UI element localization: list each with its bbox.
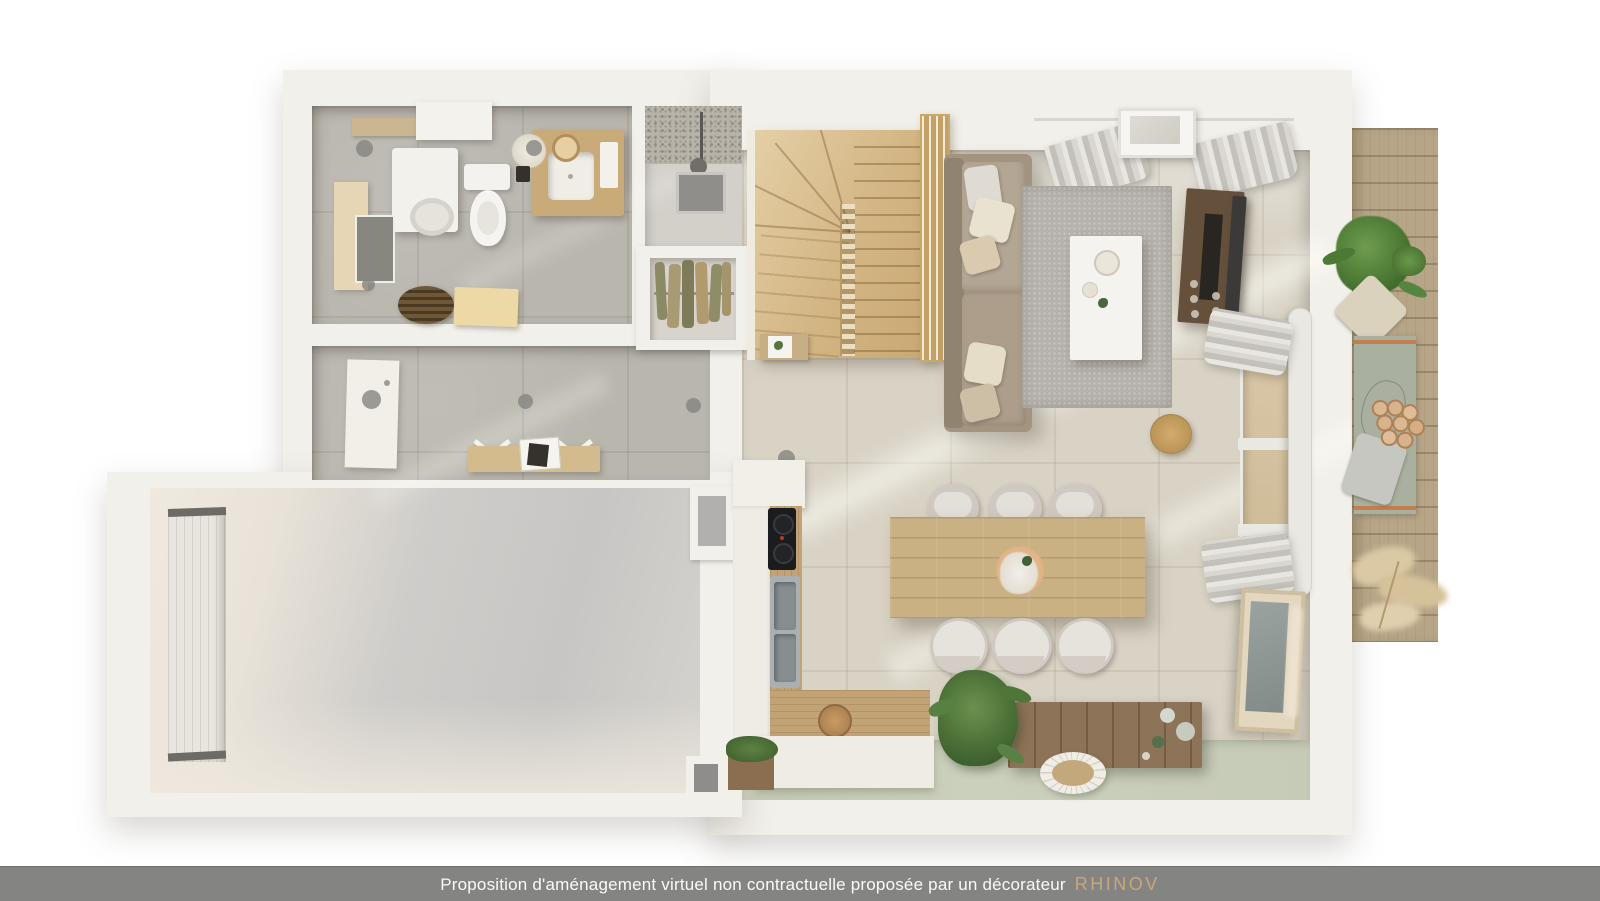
mirror-glass bbox=[1245, 601, 1289, 713]
cooktop-indicator bbox=[780, 536, 784, 540]
spotlight-dot bbox=[356, 140, 373, 157]
caption-text: Proposition d'aménagement virtuel non co… bbox=[440, 875, 1066, 895]
duct-nook-top-cavity bbox=[698, 496, 726, 546]
balcony-plant-small bbox=[1392, 246, 1426, 276]
sink-bowl bbox=[774, 582, 796, 630]
duct-nook-bottom-cavity bbox=[694, 764, 718, 792]
stair-treads-right bbox=[854, 146, 920, 356]
log-slice-table bbox=[1365, 395, 1433, 457]
hanging-clothes bbox=[682, 260, 694, 328]
bench-jar bbox=[1176, 722, 1195, 741]
staircase bbox=[754, 130, 936, 358]
chair-seat-sliver bbox=[934, 492, 972, 518]
log-slice bbox=[1396, 431, 1415, 450]
sink-bowl bbox=[774, 634, 796, 682]
toilet-seat-inner bbox=[477, 201, 499, 235]
bathroom-wall-shelf bbox=[352, 118, 416, 136]
jute-pouf bbox=[1150, 414, 1192, 454]
kitchen-cabinet-front-horizontal bbox=[756, 736, 934, 788]
laundry-basket bbox=[398, 286, 454, 324]
balcony-rug-stripe bbox=[1354, 340, 1416, 344]
cooktop-burner bbox=[773, 514, 794, 535]
candle-large bbox=[1094, 250, 1120, 276]
spotlight-dot bbox=[362, 390, 381, 409]
centerpiece-flowers bbox=[1000, 552, 1038, 594]
spotlight-dot bbox=[526, 140, 542, 156]
shower-pipe bbox=[700, 112, 703, 164]
decor-clock-center bbox=[1052, 760, 1094, 786]
decor-knob bbox=[1190, 295, 1198, 303]
candle-small bbox=[1082, 282, 1098, 298]
spotlight-dot bbox=[518, 394, 533, 409]
vanity-tray bbox=[600, 142, 618, 188]
bathroom-cabinet bbox=[416, 102, 492, 140]
kitchen-north-stub bbox=[733, 460, 805, 508]
chair-seat-sliver bbox=[996, 492, 1034, 518]
bathroom-mirror-panel bbox=[355, 215, 395, 283]
bench-knob bbox=[1142, 752, 1150, 760]
decor-knob bbox=[1212, 292, 1220, 300]
hanging-clothes bbox=[722, 262, 731, 316]
console-book-dark bbox=[527, 443, 549, 467]
stair-center-rail bbox=[840, 204, 855, 356]
caption-bar: Proposition d'aménagement virtuel non co… bbox=[0, 866, 1600, 901]
skylight-pane bbox=[1130, 116, 1180, 144]
washing-machine-door bbox=[410, 198, 454, 236]
vanity-mirror bbox=[552, 134, 580, 162]
hanging-clothes bbox=[667, 264, 681, 328]
shower-terrazzo-wall bbox=[645, 106, 742, 164]
bench-plant-pot bbox=[1152, 736, 1164, 748]
garage-door bbox=[168, 510, 226, 762]
cooktop-burner bbox=[773, 543, 794, 564]
hall-door-leaf bbox=[345, 359, 400, 468]
sofa-pillow bbox=[963, 341, 1007, 387]
sofa-backrest bbox=[944, 158, 964, 428]
vanity-plant-pot bbox=[516, 166, 530, 182]
rhinov-logo-text: RHINOV bbox=[1075, 874, 1160, 895]
spotlight-dot bbox=[686, 398, 701, 413]
floorplan-render: Proposition d'aménagement virtuel non co… bbox=[0, 0, 1600, 901]
decor-knob bbox=[1190, 280, 1198, 288]
shower-tray bbox=[676, 172, 726, 214]
bench-jar bbox=[1160, 708, 1175, 723]
storage-box bbox=[453, 287, 518, 327]
toilet-tank bbox=[464, 164, 510, 190]
garage-floor-light bbox=[150, 700, 700, 793]
decor-knob bbox=[1191, 310, 1199, 318]
door-knob bbox=[384, 380, 390, 386]
radiator bbox=[1288, 308, 1312, 596]
stair-edge-board bbox=[747, 130, 755, 360]
chair-seat-sliver bbox=[1056, 492, 1094, 518]
spotlight-dot bbox=[362, 278, 375, 291]
curtain-rod-right bbox=[1180, 118, 1294, 121]
kitchen-cabinet-front-vertical bbox=[733, 506, 773, 750]
balcony-rug-stripe bbox=[1354, 506, 1416, 510]
kitchen-plant bbox=[726, 736, 778, 762]
bread-basket bbox=[818, 704, 852, 738]
window-mullion bbox=[1238, 438, 1290, 450]
hanging-clothes bbox=[695, 262, 709, 324]
sink-drain bbox=[568, 174, 573, 179]
